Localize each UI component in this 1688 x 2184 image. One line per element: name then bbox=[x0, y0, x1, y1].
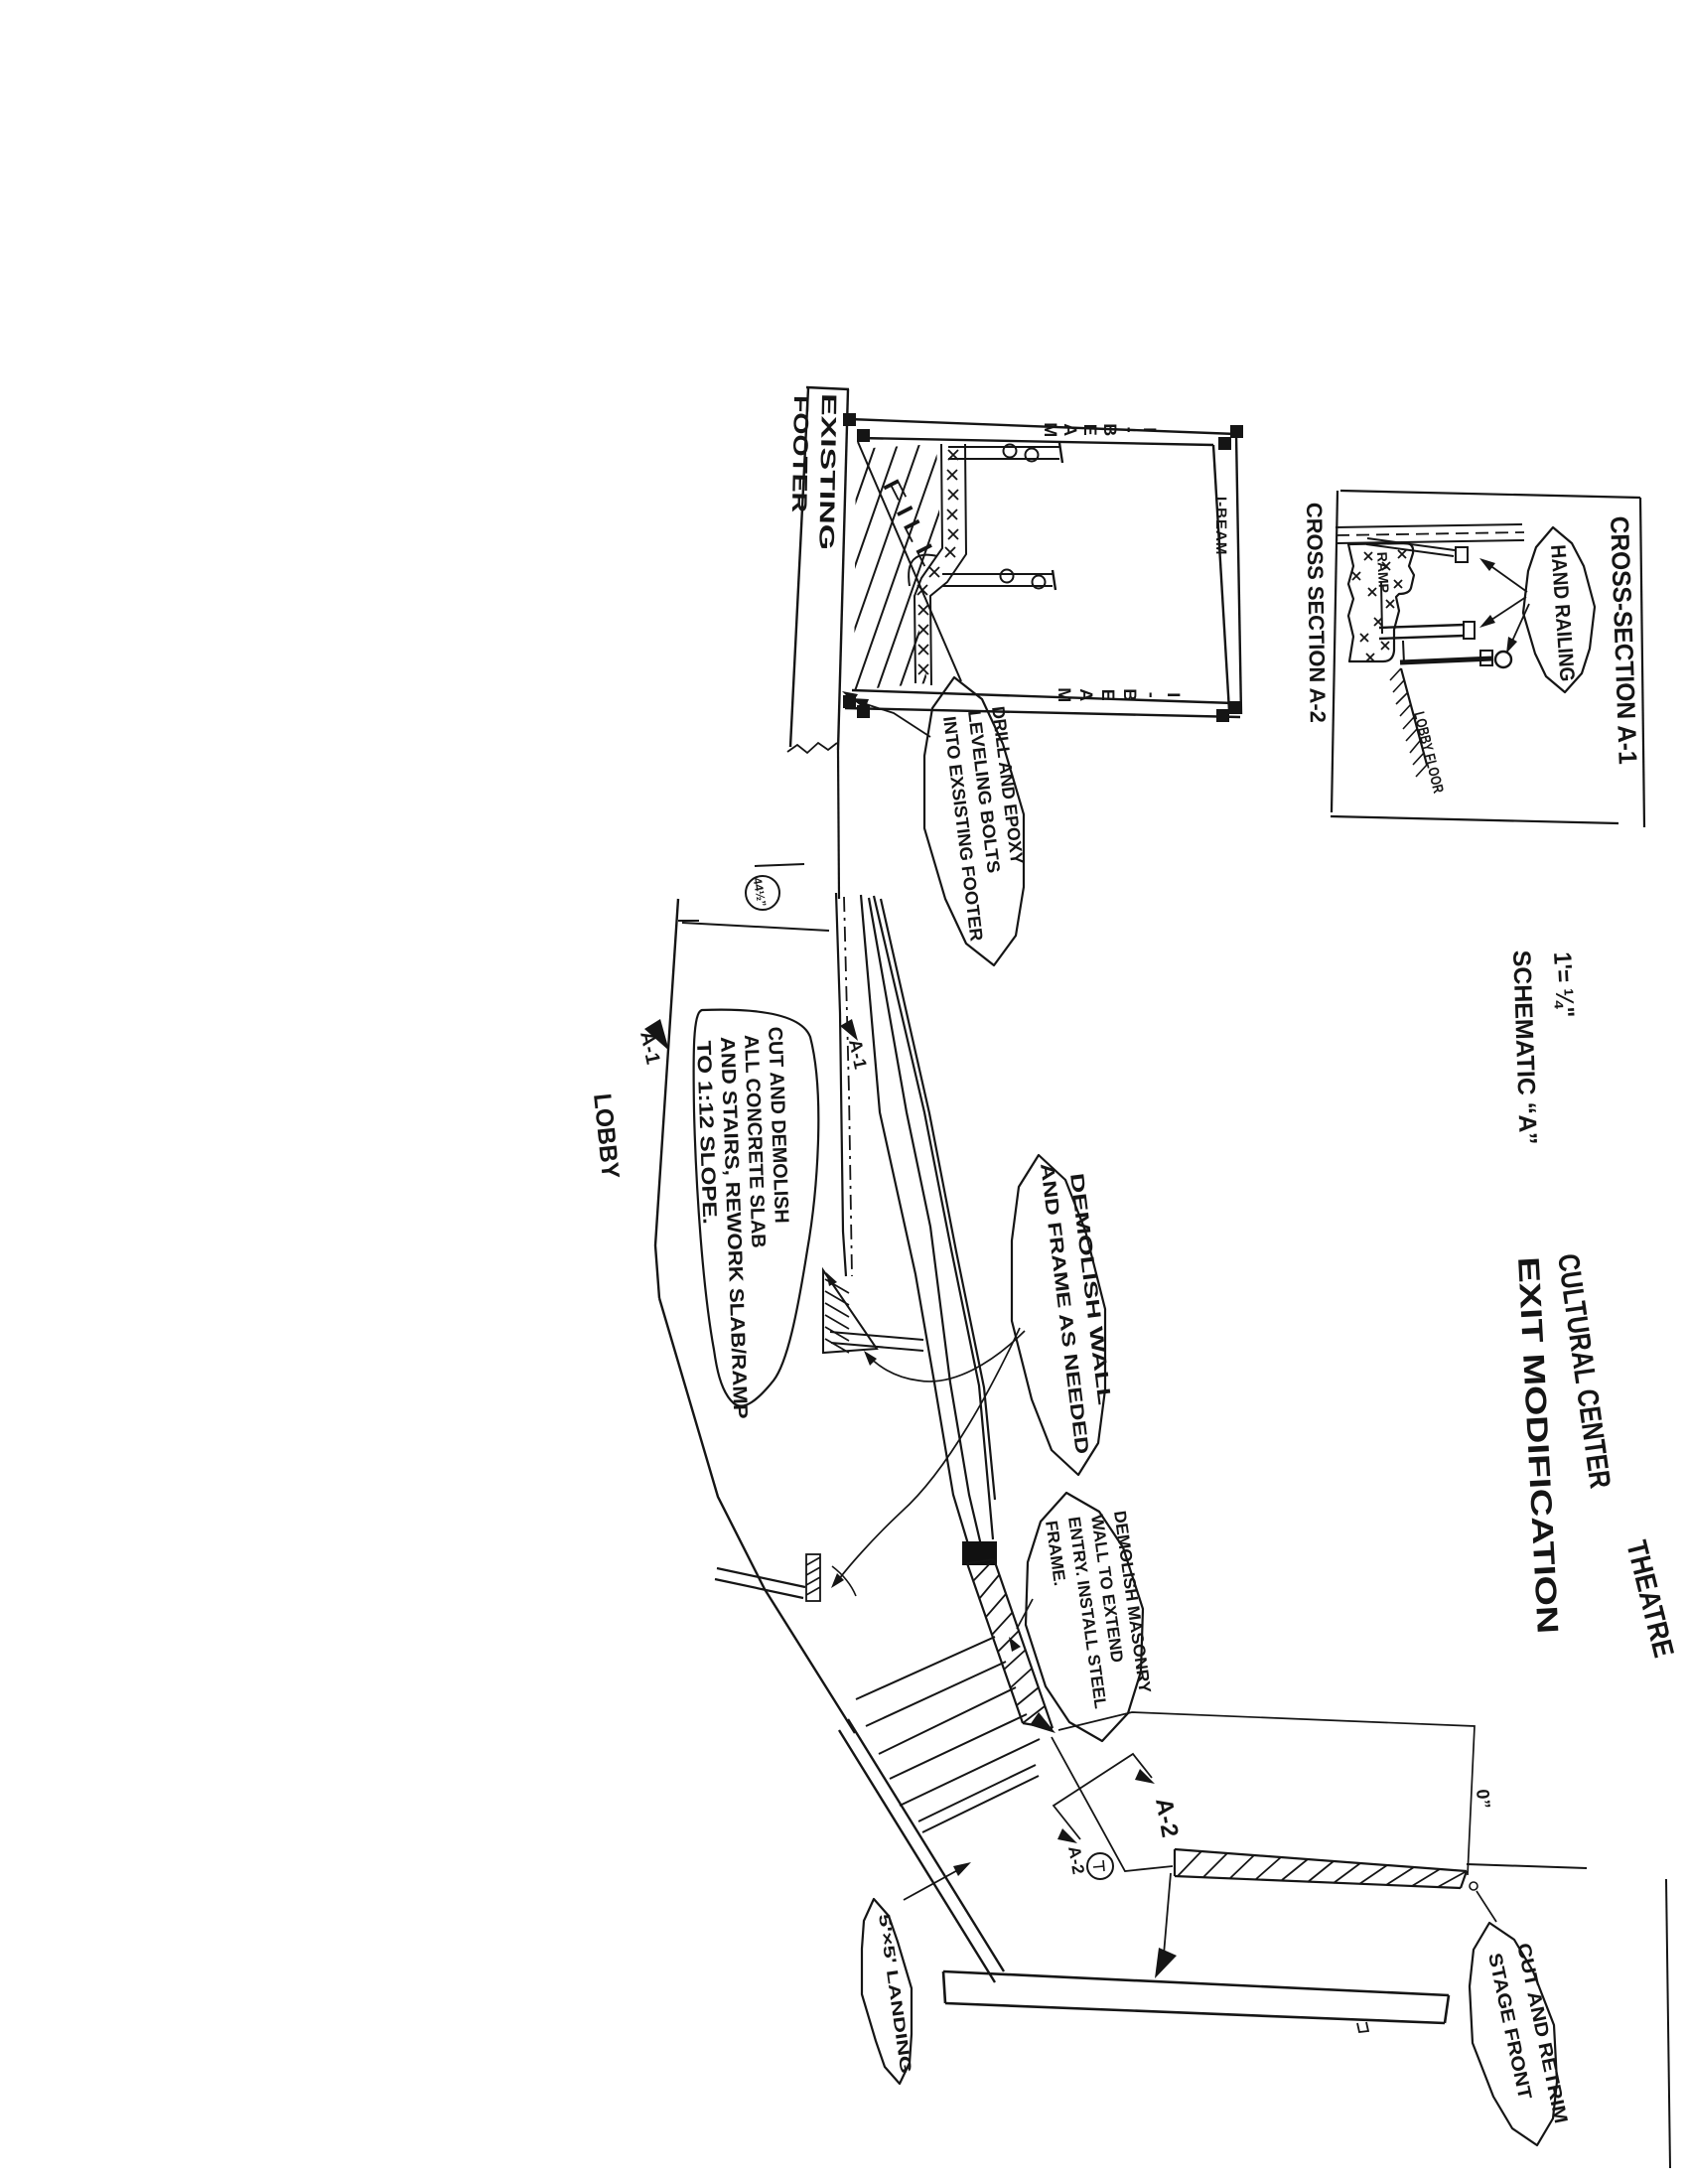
svg-text:0”: 0” bbox=[1473, 1789, 1494, 1811]
svg-text:I: I bbox=[1140, 427, 1160, 433]
svg-text:A: A bbox=[1076, 688, 1096, 702]
svg-text:5'×5' LANDING: 5'×5' LANDING bbox=[875, 1913, 914, 2075]
svg-text:RAMP: RAMP bbox=[1374, 551, 1392, 593]
svg-text:A-2: A-2 bbox=[1150, 1796, 1184, 1839]
svg-text:I-BEAM: I-BEAM bbox=[1212, 497, 1229, 555]
svg-text:LOBBY: LOBBY bbox=[588, 1092, 625, 1181]
svg-text:A-2: A-2 bbox=[1064, 1844, 1088, 1876]
svg-text:-: - bbox=[1142, 692, 1162, 699]
svg-text:M: M bbox=[1055, 687, 1074, 703]
svg-text:LOBBY FLOOR: LOBBY FLOOR bbox=[1410, 710, 1447, 796]
svg-text:1'= ¼": 1'= ¼" bbox=[1548, 951, 1579, 1018]
svg-text:M: M bbox=[1041, 422, 1060, 438]
svg-text:E: E bbox=[1098, 689, 1118, 702]
svg-text:A: A bbox=[1060, 423, 1080, 437]
svg-text:A-1: A-1 bbox=[845, 1038, 871, 1072]
svg-text:EXIT MODIFICATION: EXIT MODIFICATION bbox=[1511, 1256, 1564, 1635]
svg-text:B: B bbox=[1120, 688, 1140, 702]
svg-text:-: - bbox=[1120, 427, 1140, 434]
svg-text:CULTURAL CENTER: CULTURAL CENTER bbox=[1551, 1251, 1617, 1491]
svg-text:HAND RAILING: HAND RAILING bbox=[1546, 544, 1579, 682]
svg-text:B: B bbox=[1100, 423, 1120, 437]
svg-text:FOOTER: FOOTER bbox=[787, 395, 812, 512]
svg-text:CROSS SECTION A-2: CROSS SECTION A-2 bbox=[1302, 503, 1331, 723]
svg-text:THEATRE: THEATRE bbox=[1619, 1537, 1679, 1661]
svg-text:EXISTING: EXISTING bbox=[814, 393, 840, 550]
svg-text:I: I bbox=[1164, 692, 1184, 698]
svg-text:FRAME.: FRAME. bbox=[1042, 1520, 1069, 1587]
svg-text:TO 1:12 SLOPE.: TO 1:12 SLOPE. bbox=[692, 1040, 720, 1225]
svg-text:CROSS-SECTION A-1: CROSS-SECTION A-1 bbox=[1605, 515, 1643, 765]
svg-text:E: E bbox=[1080, 424, 1100, 437]
svg-text:SCHEMATIC “A”: SCHEMATIC “A” bbox=[1507, 949, 1542, 1145]
svg-text:44½”: 44½” bbox=[750, 877, 769, 908]
